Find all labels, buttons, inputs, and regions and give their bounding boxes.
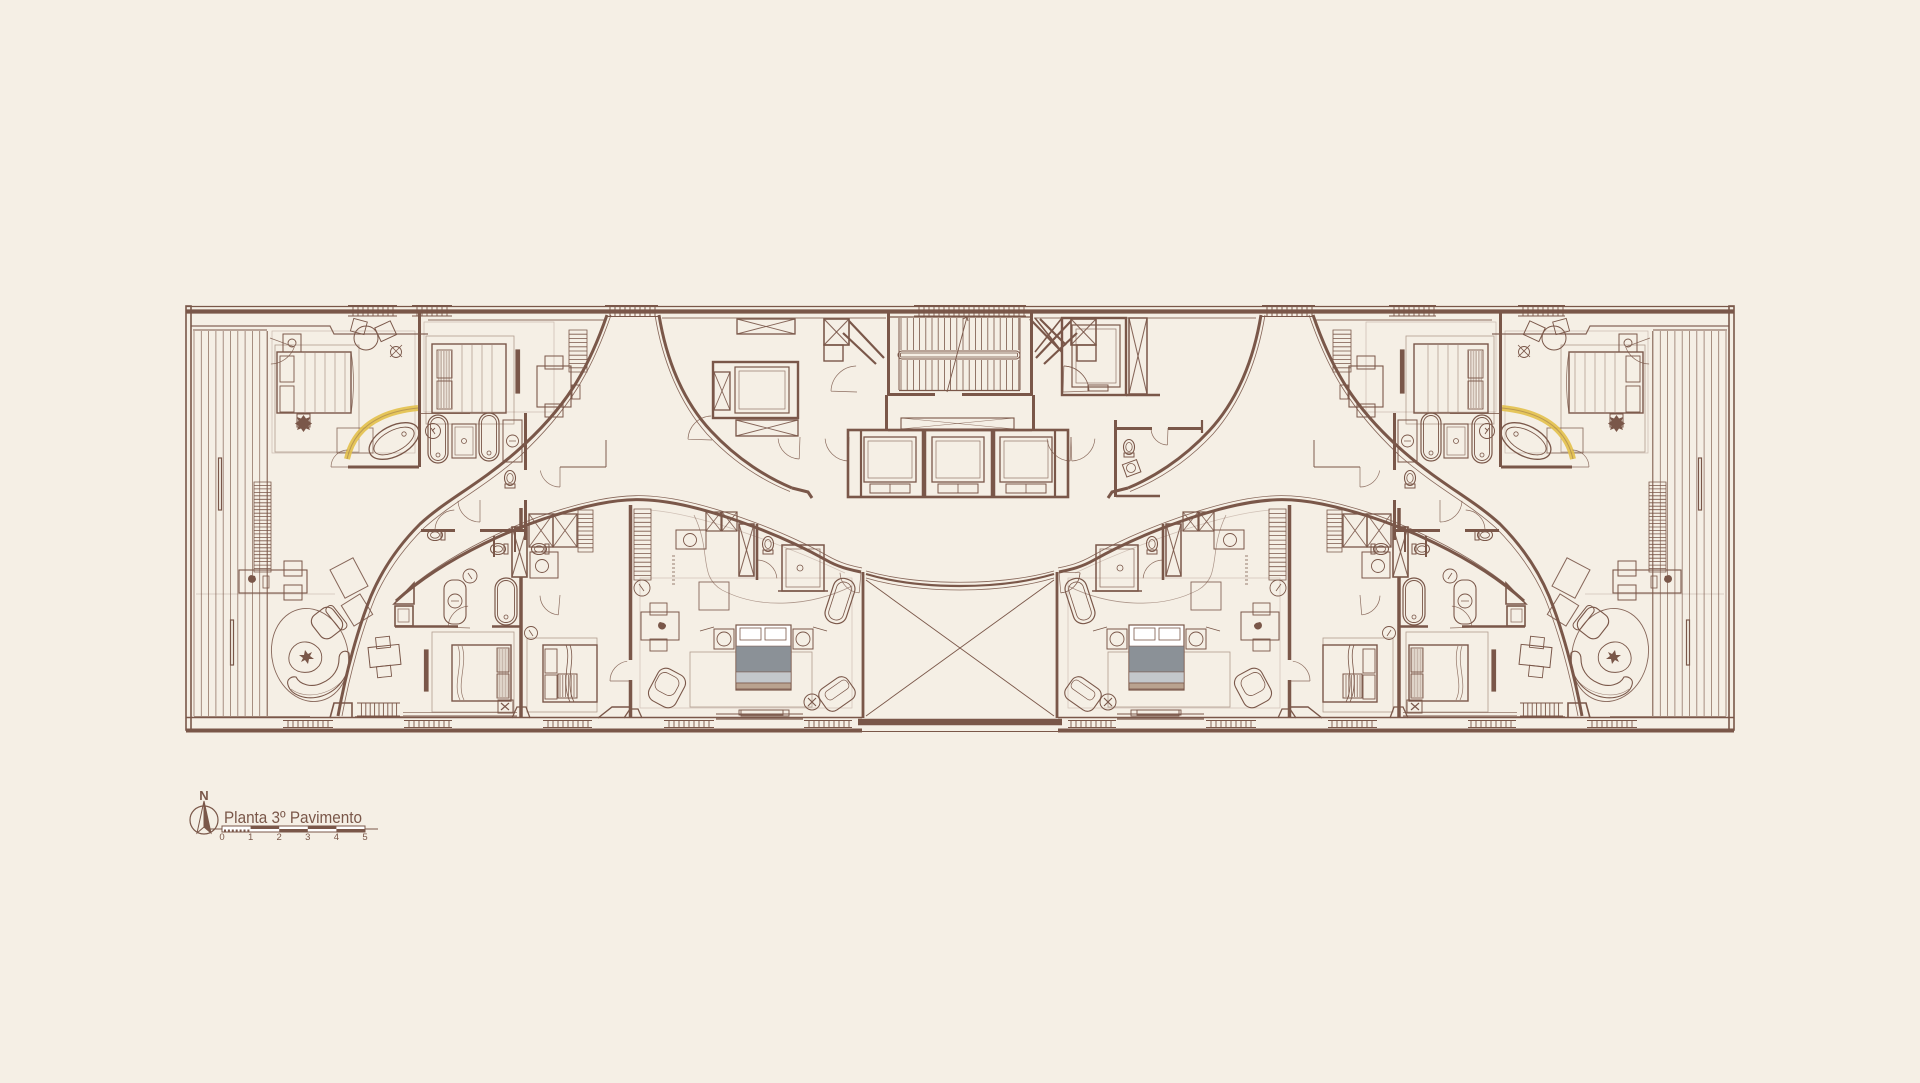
svg-text:4: 4 <box>334 832 339 843</box>
svg-text:N: N <box>199 788 208 803</box>
svg-text:Planta 3º Pavimento: Planta 3º Pavimento <box>224 808 362 827</box>
svg-text:5: 5 <box>362 832 367 843</box>
svg-text:2: 2 <box>277 832 282 843</box>
svg-text:0: 0 <box>219 832 224 843</box>
svg-text:3: 3 <box>305 832 310 843</box>
svg-text:1: 1 <box>248 832 253 843</box>
